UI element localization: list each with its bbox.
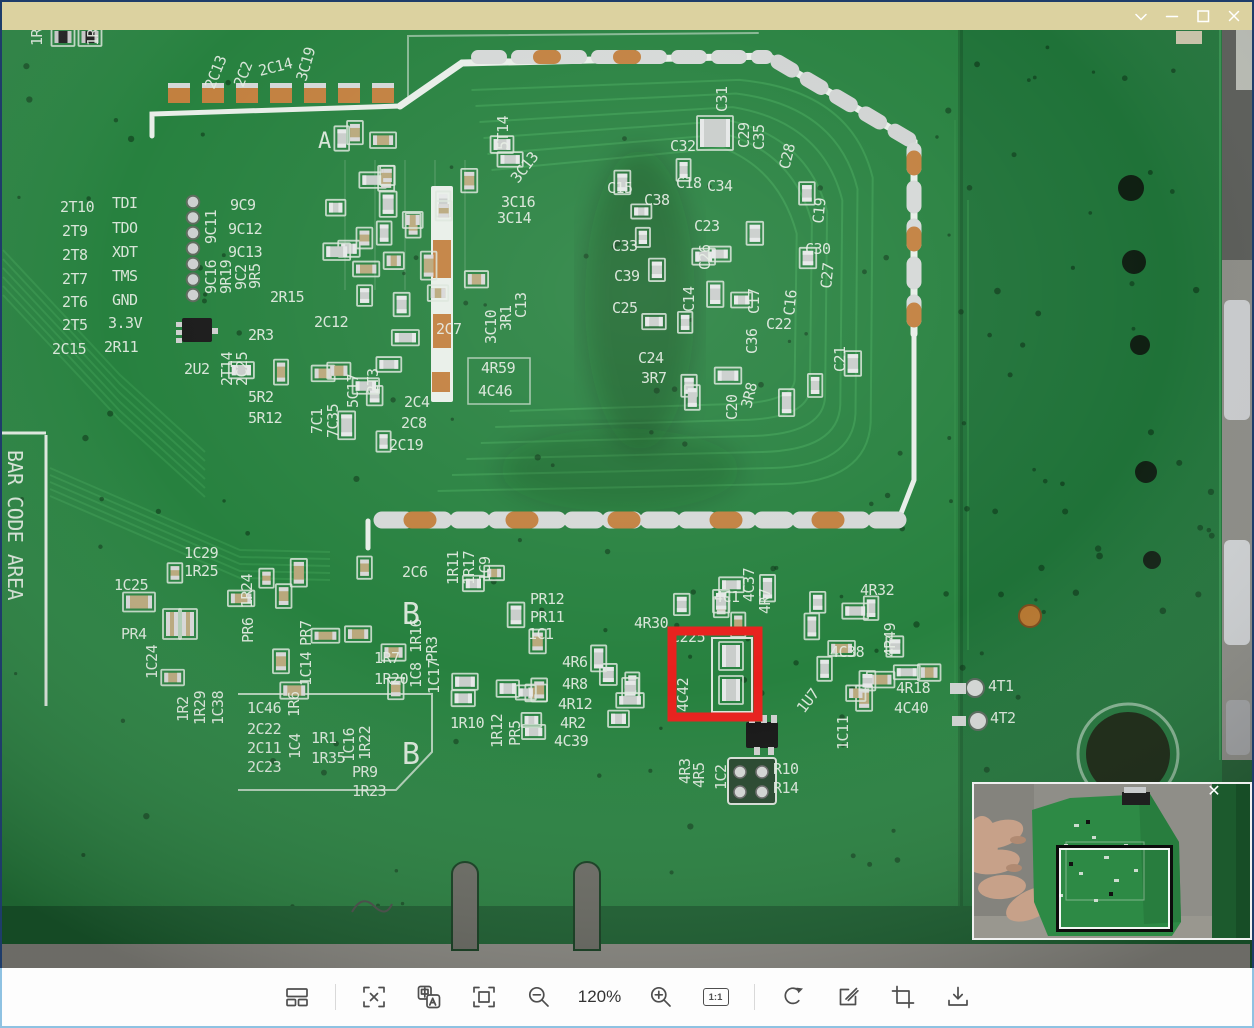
svg-text:4T1: 4T1 — [988, 677, 1014, 695]
crop-button[interactable] — [886, 980, 920, 1014]
zoom-out-button[interactable] — [522, 980, 556, 1014]
svg-text:2T3: 2T3 — [364, 368, 382, 394]
svg-text:2C15: 2C15 — [52, 340, 86, 358]
svg-text:3C14: 3C14 — [497, 209, 532, 227]
svg-text:C33: C33 — [612, 237, 638, 255]
svg-text:C13: C13 — [512, 292, 530, 318]
svg-text:4R30: 4R30 — [634, 614, 669, 632]
toolbar-divider — [335, 984, 336, 1010]
svg-text:2C11: 2C11 — [247, 739, 282, 757]
minimap-close-button[interactable]: ✕ — [1203, 781, 1225, 803]
svg-text:1R7: 1R7 — [374, 649, 400, 667]
svg-text:TMS: TMS — [112, 267, 138, 285]
svg-text:2C23: 2C23 — [247, 758, 281, 776]
svg-text:4C39: 4C39 — [554, 732, 589, 750]
window-border — [0, 968, 2, 1028]
svg-text:2C22: 2C22 — [247, 720, 281, 738]
zoom-in-button[interactable] — [644, 980, 678, 1014]
svg-text:2T6: 2T6 — [62, 293, 88, 311]
svg-text:4T2: 4T2 — [990, 709, 1016, 727]
svg-text:2C6: 2C6 — [402, 563, 428, 581]
minimap-viewport[interactable] — [1056, 845, 1173, 932]
svg-text:C17: C17 — [745, 288, 763, 314]
svg-text:1C11: 1C11 — [834, 715, 852, 750]
svg-text:1C1: 1C1 — [528, 625, 554, 643]
svg-text:4C42: 4C42 — [674, 678, 692, 712]
svg-text:BAR CODE AREA: BAR CODE AREA — [3, 450, 27, 600]
edit-button[interactable] — [831, 980, 865, 1014]
svg-text:7C35: 7C35 — [324, 404, 342, 438]
svg-text:1R: 1R — [84, 30, 102, 46]
svg-text:2C19: 2C19 — [389, 436, 424, 454]
svg-text:C38: C38 — [644, 191, 670, 209]
svg-text:4C38: 4C38 — [830, 643, 865, 661]
svg-text:C19: C19 — [809, 197, 830, 225]
svg-text:4R12: 4R12 — [558, 695, 592, 713]
svg-text:1C9: 1C9 — [476, 556, 494, 582]
svg-text:1C46: 1C46 — [247, 699, 282, 717]
svg-text:C18: C18 — [676, 174, 702, 192]
chevron-down-icon[interactable] — [1127, 2, 1155, 30]
svg-text:C14: C14 — [680, 286, 698, 312]
svg-text:C39: C39 — [614, 267, 640, 285]
svg-text:2C12: 2C12 — [314, 313, 348, 331]
svg-text:4R49: 4R49 — [881, 622, 899, 657]
svg-text:1R1: 1R1 — [311, 729, 337, 747]
svg-text:2R15: 2R15 — [270, 288, 304, 306]
thumbnails-button[interactable] — [280, 980, 314, 1014]
svg-text:3.3V: 3.3V — [108, 314, 143, 332]
svg-text:C21: C21 — [831, 346, 849, 372]
svg-text:PR11: PR11 — [530, 608, 565, 626]
original-size-button[interactable]: 1:1 — [699, 980, 733, 1014]
svg-text:9R5: 9R5 — [246, 263, 264, 289]
svg-text:2T10: 2T10 — [60, 198, 95, 216]
svg-text:PR5: PR5 — [506, 720, 524, 746]
svg-text:1R29: 1R29 — [191, 690, 209, 725]
svg-text:C32: C32 — [670, 137, 696, 155]
svg-text:1R2: 1R2 — [174, 696, 192, 722]
svg-text:4R59: 4R59 — [481, 359, 516, 377]
titlebar[interactable] — [2, 2, 1252, 30]
svg-text:2C8: 2C8 — [401, 414, 427, 432]
svg-text:5R2: 5R2 — [248, 388, 274, 406]
svg-text:C36: C36 — [743, 328, 761, 354]
translate-button[interactable] — [412, 980, 446, 1014]
maximize-button[interactable] — [1189, 2, 1217, 30]
svg-text:1R25: 1R25 — [184, 562, 218, 580]
svg-text:1R: 1R — [28, 30, 46, 46]
svg-text:1C14: 1C14 — [297, 651, 315, 686]
toolbar-divider — [754, 984, 755, 1010]
svg-text:1R6: 1R6 — [285, 691, 303, 717]
svg-text:1R22: 1R22 — [356, 726, 374, 760]
one-to-one-icon: 1:1 — [703, 988, 729, 1006]
screenshot-select-button[interactable] — [357, 980, 391, 1014]
svg-text:4R8: 4R8 — [562, 675, 588, 693]
svg-text:4R7: 4R7 — [756, 588, 774, 614]
svg-text:1R23: 1R23 — [352, 782, 386, 800]
svg-text:3R7: 3R7 — [641, 369, 667, 387]
svg-text:C23: C23 — [694, 217, 720, 235]
svg-text:2T5: 2T5 — [62, 316, 88, 334]
svg-text:GND: GND — [112, 291, 138, 309]
svg-text:5C17: 5C17 — [344, 374, 362, 408]
svg-text:4R5: 4R5 — [690, 762, 708, 788]
window-border — [0, 0, 2, 968]
zoom-level: 120% — [577, 987, 623, 1007]
svg-text:2C7: 2C7 — [436, 320, 462, 338]
svg-text:TDI: TDI — [112, 194, 138, 212]
svg-text:PR3: PR3 — [423, 636, 441, 662]
svg-text:PR4: PR4 — [121, 625, 147, 643]
svg-text:2R3: 2R3 — [248, 326, 274, 344]
svg-text:C25: C25 — [612, 299, 638, 317]
svg-text:4R18: 4R18 — [896, 679, 931, 697]
svg-text:R10: R10 — [773, 760, 799, 778]
svg-text:5T14: 5T14 — [494, 115, 512, 150]
svg-text:2C4: 2C4 — [404, 393, 430, 411]
svg-text:1R12: 1R12 — [488, 714, 506, 748]
svg-text:4R32: 4R32 — [860, 581, 894, 599]
rotate-button[interactable] — [776, 980, 810, 1014]
svg-text:9C12: 9C12 — [228, 220, 262, 238]
svg-text:2U2: 2U2 — [184, 360, 210, 378]
svg-text:2R11: 2R11 — [104, 338, 139, 356]
svg-text:1C2: 1C2 — [712, 764, 730, 790]
svg-text:4C1: 4C1 — [714, 588, 740, 606]
svg-text:1C4: 1C4 — [286, 733, 304, 759]
svg-text:9C11: 9C11 — [202, 209, 220, 244]
svg-text:1C29: 1C29 — [184, 544, 219, 562]
svg-text:PR7: PR7 — [297, 620, 315, 646]
svg-text:C20: C20 — [723, 394, 741, 420]
save-button[interactable] — [941, 980, 975, 1014]
svg-text:4C40: 4C40 — [894, 699, 929, 717]
svg-text:XDT: XDT — [112, 243, 138, 261]
svg-text:4C46: 4C46 — [478, 382, 513, 400]
svg-text:C22: C22 — [766, 315, 792, 333]
mini-connector — [1122, 792, 1150, 805]
svg-text:A: A — [318, 129, 331, 154]
svg-text:C35: C35 — [750, 124, 768, 150]
svg-text:1R20: 1R20 — [374, 670, 409, 688]
svg-text:C16: C16 — [780, 289, 801, 317]
svg-text:C15: C15 — [607, 179, 633, 197]
svg-text:C31: C31 — [713, 86, 731, 112]
toolbar: 120% 1:1 — [2, 968, 1252, 1026]
svg-text:9C9: 9C9 — [230, 196, 256, 214]
svg-text:9C13: 9C13 — [228, 243, 262, 261]
svg-text:4R6: 4R6 — [562, 653, 588, 671]
image-viewer-window: 1R1R2C132C22C143C19A2T10TDI2T9TDO2T8XDT2… — [0, 0, 1254, 1028]
minimize-button[interactable] — [1158, 2, 1186, 30]
svg-text:C26: C26 — [696, 244, 714, 270]
svg-text:C24: C24 — [638, 349, 664, 367]
svg-text:1C17: 1C17 — [425, 660, 443, 694]
svg-text:1R24: 1R24 — [238, 573, 256, 608]
svg-text:1C25: 1C25 — [114, 576, 148, 594]
svg-text:B: B — [402, 737, 420, 772]
svg-text:1C38: 1C38 — [209, 690, 227, 725]
svg-text:2T7: 2T7 — [62, 270, 88, 288]
svg-text:PR12: PR12 — [530, 590, 564, 608]
svg-text:1C8: 1C8 — [407, 662, 425, 688]
svg-text:PR9: PR9 — [352, 763, 378, 781]
svg-text:2T8: 2T8 — [62, 246, 88, 264]
svg-text:5R12: 5R12 — [248, 409, 282, 427]
svg-text:TDO: TDO — [112, 219, 138, 237]
svg-text:2C25: 2C25 — [233, 352, 251, 386]
svg-text:1C24: 1C24 — [143, 644, 161, 679]
fit-window-button[interactable] — [467, 980, 501, 1014]
svg-text:R14: R14 — [773, 779, 799, 797]
svg-text:2T9: 2T9 — [62, 222, 88, 240]
svg-text:1R10: 1R10 — [450, 714, 485, 732]
window-border — [0, 0, 1254, 2]
close-button[interactable] — [1220, 2, 1248, 30]
svg-text:C27: C27 — [817, 262, 838, 289]
svg-text:C30: C30 — [805, 240, 831, 258]
svg-text:PR6: PR6 — [239, 617, 257, 643]
svg-text:4R2: 4R2 — [560, 714, 586, 732]
svg-text:C34: C34 — [707, 177, 733, 195]
